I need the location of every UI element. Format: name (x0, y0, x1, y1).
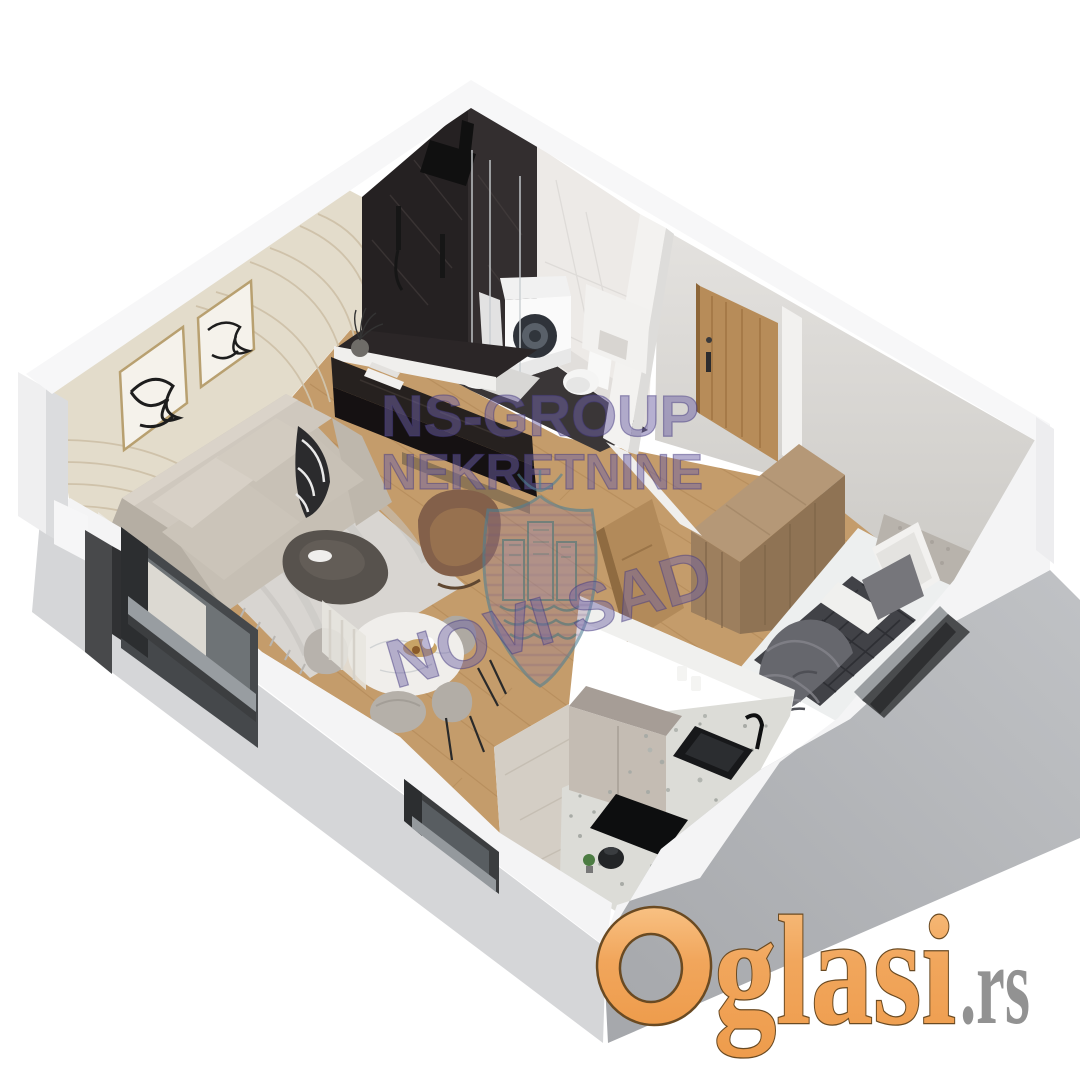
svg-text:.rs: .rs (960, 924, 1030, 1048)
svg-text:NS-GROUP: NS-GROUP (381, 384, 699, 449)
svg-text:glasi: glasi (714, 884, 956, 1058)
